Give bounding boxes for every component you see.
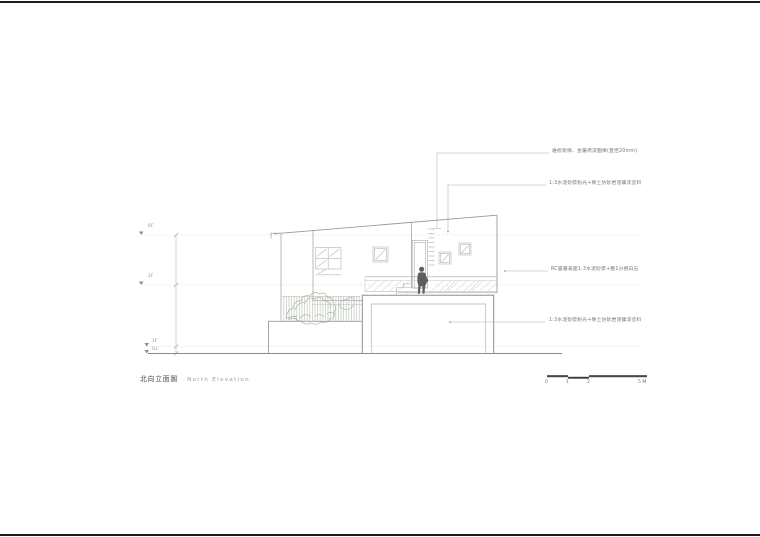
annotation-wall-finish-upper: 1:3水泥砂漿粉光+樂土仿砂岩泥礦漆塗料: [549, 182, 642, 187]
planter-wall: [269, 321, 363, 353]
scale-end-label: 5 M: [638, 381, 646, 386]
annotation-leaders: [433, 153, 549, 323]
drawing-title-en: North Elevation: [187, 377, 250, 383]
annotation-ladder: 維修爬梯．金屬烤漆圓棒(直徑20mm): [552, 150, 637, 155]
maintenance-ladder: [429, 229, 435, 265]
scale-bar-graphic: [547, 375, 647, 379]
drawing-title: 北向立面圖 North Elevation: [140, 368, 250, 384]
terrace-railing: [365, 277, 497, 292]
dimension-line: [174, 233, 178, 356]
scale-tick-2: 2: [587, 381, 590, 386]
level-label-2f: 2F: [148, 274, 153, 278]
annotation-wall-finish-lower: 1:3水泥砂漿粉光+樂土仿砂岩泥礦漆塗料: [549, 319, 642, 324]
elevation-drawing: [0, 0, 760, 537]
garage-door-opening: [371, 304, 485, 354]
scale-tick-1: 1: [566, 381, 569, 386]
level-label-rf: RF: [148, 224, 154, 228]
scale-tick-0: 0: [545, 381, 548, 386]
drawing-sheet: RF 2F 1F GL 維修爬梯．金屬烤漆圓棒(直徑20mm) 1:3水泥砂漿粉…: [0, 0, 760, 537]
small-windows: [373, 243, 471, 264]
level-label-gl: GL: [152, 347, 158, 351]
level-datum-lines: [146, 235, 640, 347]
annotation-terrace-finish: RC露臺表面1:3水泥砂漿+壓1分抿白石: [551, 268, 639, 273]
window-2f-left: [316, 248, 342, 275]
drawing-title-zh: 北向立面圖: [140, 375, 178, 383]
level-label-1f: 1F: [152, 339, 157, 343]
level-marker-icons: [139, 232, 149, 354]
slat-fence: [282, 296, 360, 321]
person-figure: [417, 267, 428, 294]
